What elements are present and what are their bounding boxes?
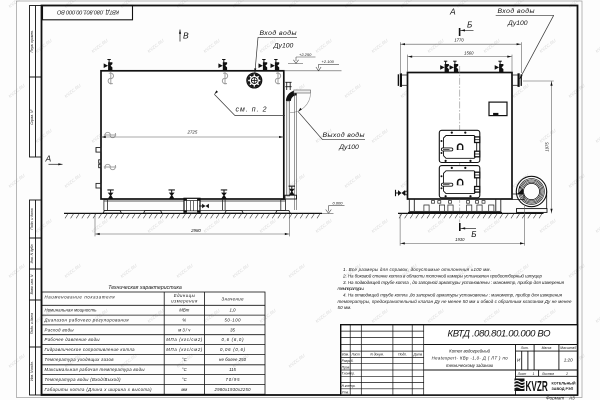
svg-text:1770: 1770 xyxy=(454,38,464,43)
svg-text:МПа (кгс/см2): МПа (кгс/см2) xyxy=(166,337,203,342)
svg-text:В: В xyxy=(183,31,189,41)
svg-text:Инв. N дубл.: Инв. N дубл. xyxy=(30,244,34,264)
svg-text:КВТД .080.801.00.000 ВО: КВТД .080.801.00.000 ВО xyxy=(448,328,552,339)
svg-text:3. На подводящей трубе котла ,: 3. На подводящей трубе котла , до запорн… xyxy=(343,279,565,285)
svg-text:0,6 (6,0): 0,6 (6,0) xyxy=(222,337,245,342)
svg-text:Изм.: Изм. xyxy=(342,353,349,357)
svg-text:Формат: Формат xyxy=(546,396,564,400)
svg-text:Ду100: Ду100 xyxy=(273,43,294,50)
svg-text:2980х1930х2250: 2980х1930х2250 xyxy=(214,387,252,392)
svg-text:1560: 1560 xyxy=(464,50,474,55)
svg-text:115: 115 xyxy=(229,367,236,372)
svg-text:м3/ч: м3/ч xyxy=(178,327,191,332)
svg-text:4. На отводящей трубе котла ,д: 4. На отводящей трубе котла ,до запорной… xyxy=(343,291,563,297)
svg-text:Т.контр.: Т.контр. xyxy=(342,372,355,376)
svg-text:Пров.: Пров. xyxy=(342,365,351,369)
svg-text:Взам. инв. N: Взам. инв. N xyxy=(30,274,34,294)
svg-text:0,06 (0,6): 0,06 (0,6) xyxy=(220,347,246,352)
svg-text:Значение: Значение xyxy=(222,297,245,302)
svg-text:техническому заданию: техническому заданию xyxy=(446,363,494,368)
svg-text:Б: Б xyxy=(467,21,472,30)
svg-text:1975: 1975 xyxy=(545,142,550,152)
svg-text:Расход воды: Расход воды xyxy=(45,327,75,332)
svg-text:1930: 1930 xyxy=(455,237,465,242)
svg-text:Лист: Лист xyxy=(350,353,360,357)
svg-text:Максимальная рабочая температу: Максимальная рабочая температура воды xyxy=(45,367,146,372)
svg-text:ЗАВОД РЭП: ЗАВОД РЭП xyxy=(552,387,574,391)
svg-text:Диапазон рабочего регулировани: Диапазон рабочего регулирования xyxy=(44,318,130,323)
svg-text:1,0: 1,0 xyxy=(230,308,237,313)
svg-text:А3: А3 xyxy=(568,396,575,400)
svg-text:Подп.: Подп. xyxy=(398,353,407,357)
svg-text:+2.250: +2.250 xyxy=(299,52,312,57)
svg-text:Ду100: Ду100 xyxy=(338,144,359,151)
svg-text:Рабочее давление воды: Рабочее давление воды xyxy=(45,337,101,342)
svg-text:МПа (кгс/см2): МПа (кгс/см2) xyxy=(166,347,203,352)
svg-text:Подп. и дата: Подп. и дата xyxy=(30,208,34,229)
svg-text:70/95: 70/95 xyxy=(226,377,241,382)
svg-text:2: 2 xyxy=(565,372,568,376)
svg-text:А: А xyxy=(449,7,456,17)
svg-text:Номинальная мощность: Номинальная мощность xyxy=(45,308,98,313)
svg-text:N докум.: N докум. xyxy=(370,353,383,357)
svg-text:+2.100: +2.100 xyxy=(322,59,335,64)
svg-text:Единицы: Единицы xyxy=(174,293,196,298)
svg-text:КОТЕЛЬНЫЙ: КОТЕЛЬНЫЙ xyxy=(552,381,576,385)
svg-text:Лит.: Лит. xyxy=(520,346,529,350)
svg-text:Температура воды (Вход/Выход): Температура воды (Вход/Выход) xyxy=(45,377,122,382)
svg-text:2980: 2980 xyxy=(190,228,201,233)
svg-text:Дата: Дата xyxy=(413,353,423,357)
svg-text:1. Все размеры для справок, до: 1. Все размеры для справок, допустимые о… xyxy=(343,267,491,272)
svg-text:измерения: измерения xyxy=(171,299,198,304)
svg-text:50 мм.: 50 мм. xyxy=(338,305,352,310)
svg-text:Гидравлическое сопротивление к: Гидравлическое сопротивление котла xyxy=(45,347,136,352)
svg-text:Наименование показателя: Наименование показателя xyxy=(45,295,116,300)
svg-text:KVZR: KVZR xyxy=(526,377,549,394)
svg-text:Лист: Лист xyxy=(517,372,527,376)
svg-text:Листов: Листов xyxy=(541,372,554,376)
svg-text:температуры.: температуры. xyxy=(338,286,365,291)
svg-text:1: 1 xyxy=(533,372,535,376)
svg-text:Ду100: Ду100 xyxy=(507,20,528,27)
svg-text:Вход воды: Вход воды xyxy=(498,7,535,15)
svg-text:Перв. примен.: Перв. примен. xyxy=(30,30,34,53)
svg-text:2725: 2725 xyxy=(187,130,198,135)
svg-text:Масштаб: Масштаб xyxy=(560,346,576,350)
svg-text:мм: мм xyxy=(181,387,187,392)
svg-text:температуры, предохранительный: температуры, предохранительный клапан Ду… xyxy=(338,298,572,304)
svg-text:не более 250: не более 250 xyxy=(219,357,247,362)
svg-text:Н.контр.: Н.контр. xyxy=(342,384,356,388)
svg-text:Котел водогрейный: Котел водогрейный xyxy=(449,348,490,353)
svg-text:А: А xyxy=(45,154,52,164)
svg-text:Выход воды: Выход воды xyxy=(323,131,365,139)
svg-text:МВт: МВт xyxy=(179,308,189,313)
svg-text:КВТД .080.801.00.000 ВО: КВТД .080.801.00.000 ВО xyxy=(56,9,119,15)
svg-text:Разраб.: Разраб. xyxy=(342,359,354,363)
svg-text:0.000: 0.000 xyxy=(333,200,344,205)
svg-text:Справ. N°: Справ. N° xyxy=(30,109,34,125)
svg-text:Инв. N подл.: Инв. N подл. xyxy=(30,361,34,381)
svg-text:Подп. и дата: Подп. и дата xyxy=(30,313,34,334)
svg-text:Масса: Масса xyxy=(542,346,552,350)
svg-text:2. На боковой стенке котла в о: 2. На боковой стенке котла в области топ… xyxy=(342,272,542,278)
svg-text:Вход воды: Вход воды xyxy=(260,29,297,37)
svg-text:Температура уходящих газов: Температура уходящих газов xyxy=(45,357,115,362)
svg-text:Heatexpert- КВр -1,0- Д ( ЛТ ): Heatexpert- КВр -1,0- Д ( ЛТ ) по xyxy=(432,356,509,361)
svg-text:Б: Б xyxy=(471,230,476,239)
svg-text:Техническая характеристика: Техническая характеристика xyxy=(108,285,182,291)
svg-text:50-100: 50-100 xyxy=(225,318,242,323)
svg-text:35: 35 xyxy=(230,327,235,332)
svg-text:%: % xyxy=(182,318,186,323)
svg-text:Утв.: Утв. xyxy=(342,390,350,394)
svg-text:1:20: 1:20 xyxy=(564,358,573,363)
svg-text:Габариты котла (Длина х ширина: Габариты котла (Длина х ширина х высота) xyxy=(45,387,153,392)
svg-text:см. п. 2: см. п. 2 xyxy=(236,107,267,114)
